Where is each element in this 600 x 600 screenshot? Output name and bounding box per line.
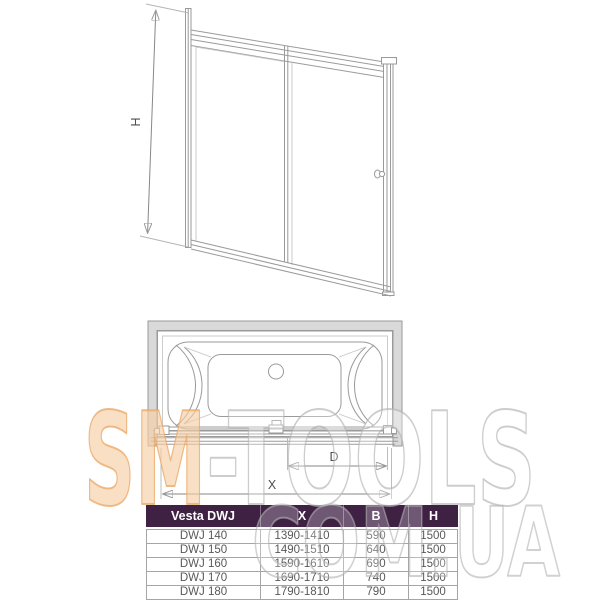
cell-h: 1500 xyxy=(408,586,457,599)
height-dim-label: H xyxy=(129,117,143,126)
cell-model: DWJ 140 xyxy=(147,530,260,543)
product-spec-sheet: H xyxy=(0,0,600,600)
table-row: DWJ 150 1490-1510 640 1500 xyxy=(147,544,457,558)
cell-x: 1590-1610 xyxy=(260,558,343,571)
door-handle-icon xyxy=(375,170,385,178)
cell-x: 1790-1810 xyxy=(260,586,343,599)
spec-table: Vesta DWJ X B H DWJ 140 1390-1410 590 15… xyxy=(146,505,458,600)
table-row: DWJ 170 1690-1710 740 1500 xyxy=(147,572,457,586)
total-width-dim-label: X xyxy=(268,478,277,492)
column-header-b: B xyxy=(343,505,408,527)
table-row: DWJ 140 1390-1410 590 1500 xyxy=(147,530,457,544)
cell-model: DWJ 180 xyxy=(147,586,260,599)
cell-b: 590 xyxy=(343,530,408,543)
cell-b: 790 xyxy=(343,586,408,599)
door-width-dim-label: D xyxy=(329,450,338,464)
cell-x: 1390-1410 xyxy=(260,530,343,543)
cell-model: DWJ 170 xyxy=(147,572,260,585)
cell-b: 640 xyxy=(343,544,408,557)
column-header-x: X xyxy=(260,505,343,527)
column-header-model: Vesta DWJ xyxy=(146,509,260,523)
table-row: DWJ 180 1790-1810 790 1500 xyxy=(147,586,457,600)
column-header-h: H xyxy=(408,505,458,527)
total-width-dimension: X xyxy=(161,448,392,499)
cell-b: 740 xyxy=(343,572,408,585)
cell-model: DWJ 160 xyxy=(147,558,260,571)
cell-h: 1500 xyxy=(408,572,457,585)
cell-x: 1490-1510 xyxy=(260,544,343,557)
cell-model: DWJ 150 xyxy=(147,544,260,557)
cell-x: 1690-1710 xyxy=(260,572,343,585)
table-row: DWJ 160 1590-1610 690 1500 xyxy=(147,558,457,572)
spec-table-body: DWJ 140 1390-1410 590 1500 DWJ 150 1490-… xyxy=(146,529,458,600)
cell-h: 1500 xyxy=(408,558,457,571)
spec-table-header: Vesta DWJ X B H xyxy=(146,505,458,527)
cell-b: 690 xyxy=(343,558,408,571)
height-dimension: H xyxy=(129,4,189,247)
cell-h: 1500 xyxy=(408,530,457,543)
cell-h: 1500 xyxy=(408,544,457,557)
door-front-view xyxy=(186,9,397,297)
tub-top-view xyxy=(148,321,402,446)
door-width-dimension: D xyxy=(288,437,388,470)
